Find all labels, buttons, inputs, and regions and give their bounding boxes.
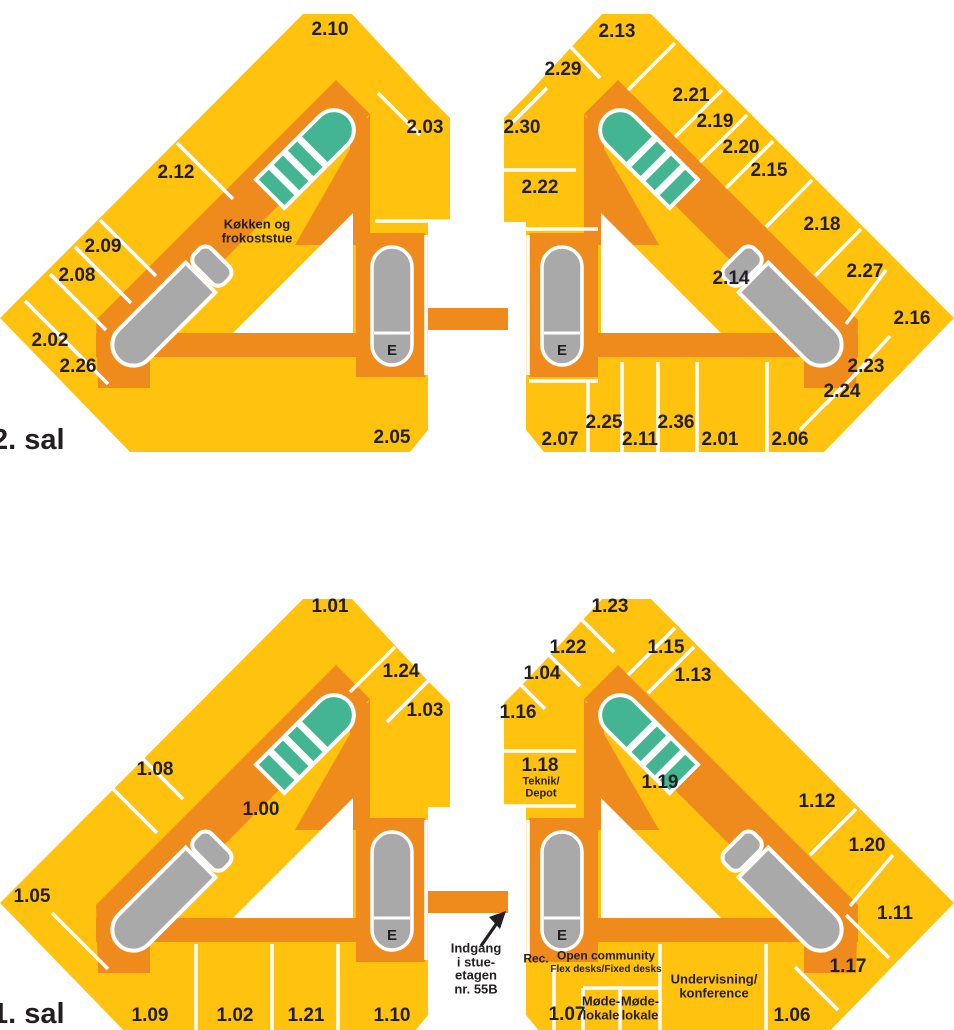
- building-floor2-west: [0, 14, 450, 452]
- bridge-floor1: [428, 891, 508, 913]
- building-floor1-west: [0, 599, 450, 1030]
- bridge-floor2: [428, 308, 508, 330]
- building-floor2-east: [504, 14, 954, 452]
- floor-plan-svg: [0, 0, 954, 1030]
- building-floor1-east: [504, 599, 954, 1030]
- entrance-arrow-icon: [481, 911, 506, 946]
- floor-plan: 2. sal2.102.032.12Køkken og frokoststue2…: [0, 0, 954, 1030]
